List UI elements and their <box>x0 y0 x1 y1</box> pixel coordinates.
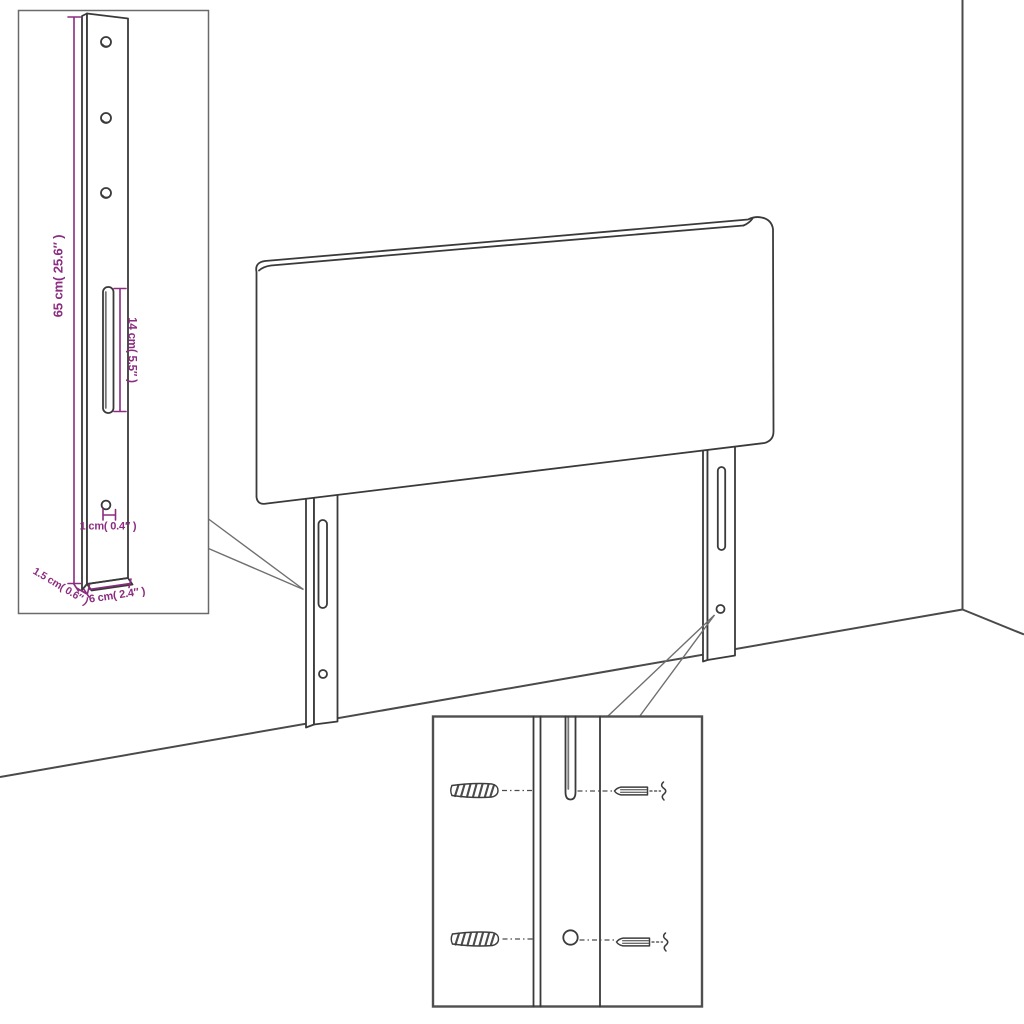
callout-lines <box>209 519 715 717</box>
diagram-canvas: 65 cm( 25.6″ ) 14 cm( 5.5″ ) 1 cm( 0.4″ … <box>0 0 1024 1024</box>
mounting-detail-inset <box>433 717 702 1007</box>
hole-dimension-label: 1 cm( 0.4″ ) <box>80 521 137 533</box>
height-dimension-label: 65 cm( 25.6″ ) <box>51 235 66 318</box>
detail-leg-front-face <box>87 14 128 585</box>
mount-detail-callout-line-left <box>608 615 715 717</box>
left-leg-side-face <box>306 491 314 728</box>
headboard-panel <box>256 217 773 504</box>
leg-detail-inset: 65 cm( 25.6″ ) 14 cm( 5.5″ ) 1 cm( 0.4″ … <box>19 11 209 614</box>
left-mounting-leg <box>306 488 338 728</box>
product-diagram: 65 cm( 25.6″ ) 14 cm( 5.5″ ) 1 cm( 0.4″ … <box>0 0 1024 1024</box>
right-mounting-leg <box>703 438 735 662</box>
right-leg-front-face <box>708 438 736 661</box>
floor-line-right <box>963 610 1024 635</box>
mount-detail-callout-line-right <box>640 615 715 717</box>
slot-dimension-label: 14 cm( 5.5″ ) <box>126 317 138 383</box>
